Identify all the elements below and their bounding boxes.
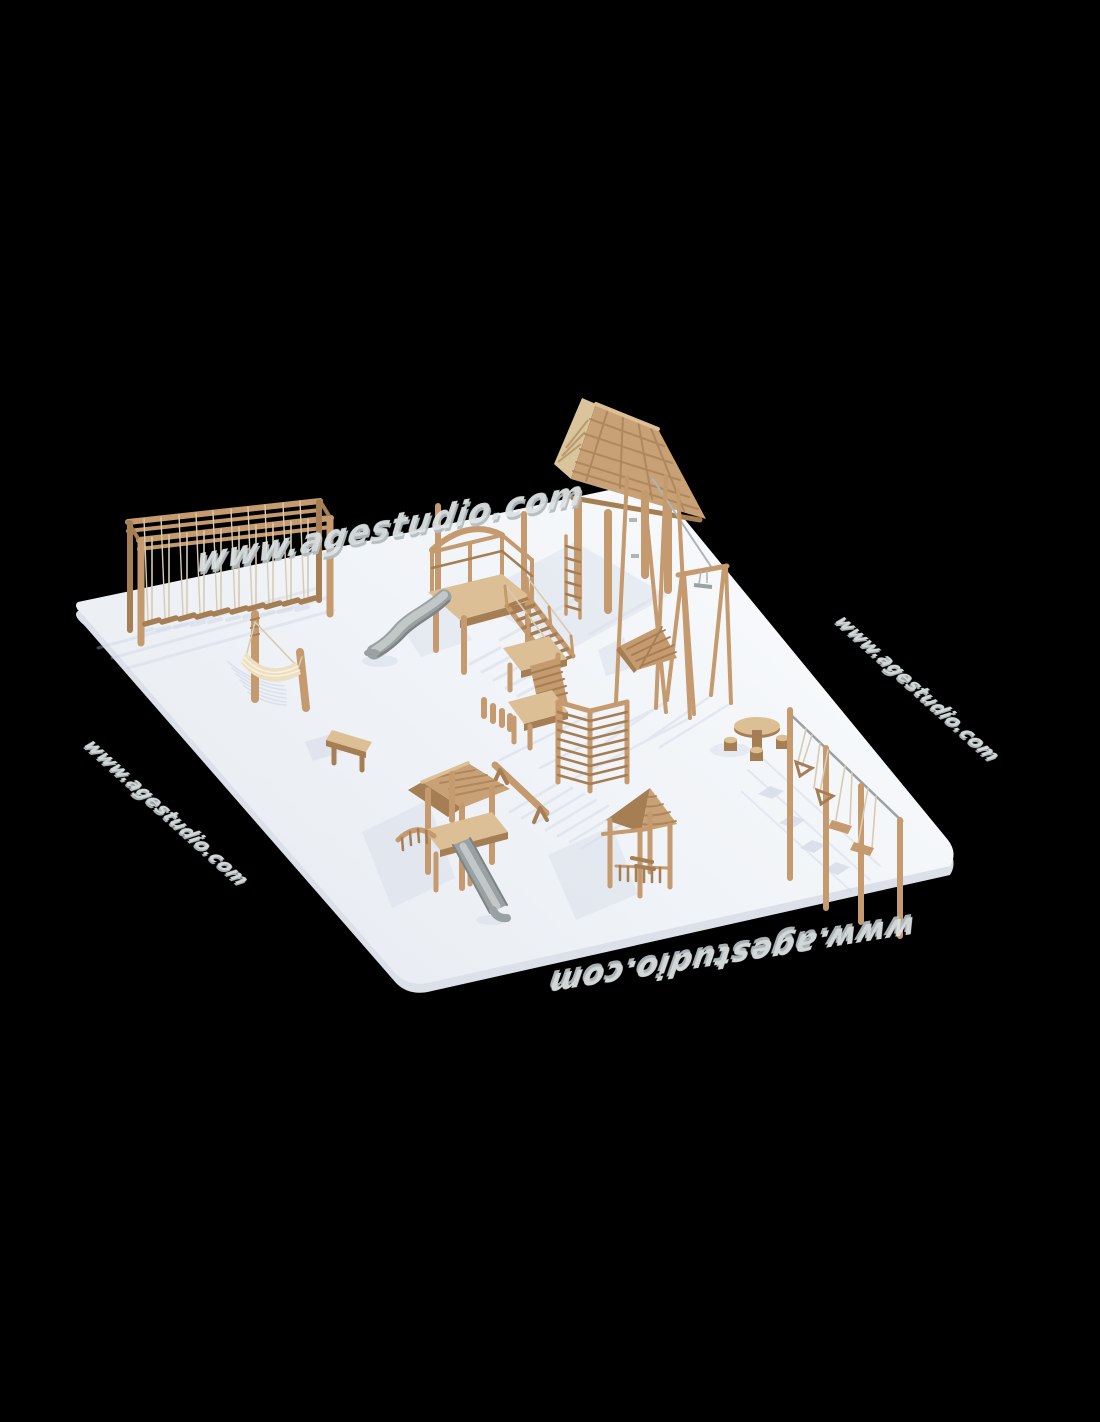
stool — [724, 737, 737, 751]
clamp — [631, 554, 639, 558]
playground-render-scene: www.agestudio.com www.agestudio.com www.… — [0, 0, 1100, 1422]
stool — [750, 747, 763, 761]
playground-render: www.agestudio.com www.agestudio.com www.… — [0, 0, 1100, 1422]
stool-top — [750, 747, 763, 753]
slide-end-cap — [364, 649, 380, 657]
trapeze-bar — [694, 585, 712, 587]
stool-top — [724, 737, 737, 743]
clamp — [629, 518, 637, 522]
